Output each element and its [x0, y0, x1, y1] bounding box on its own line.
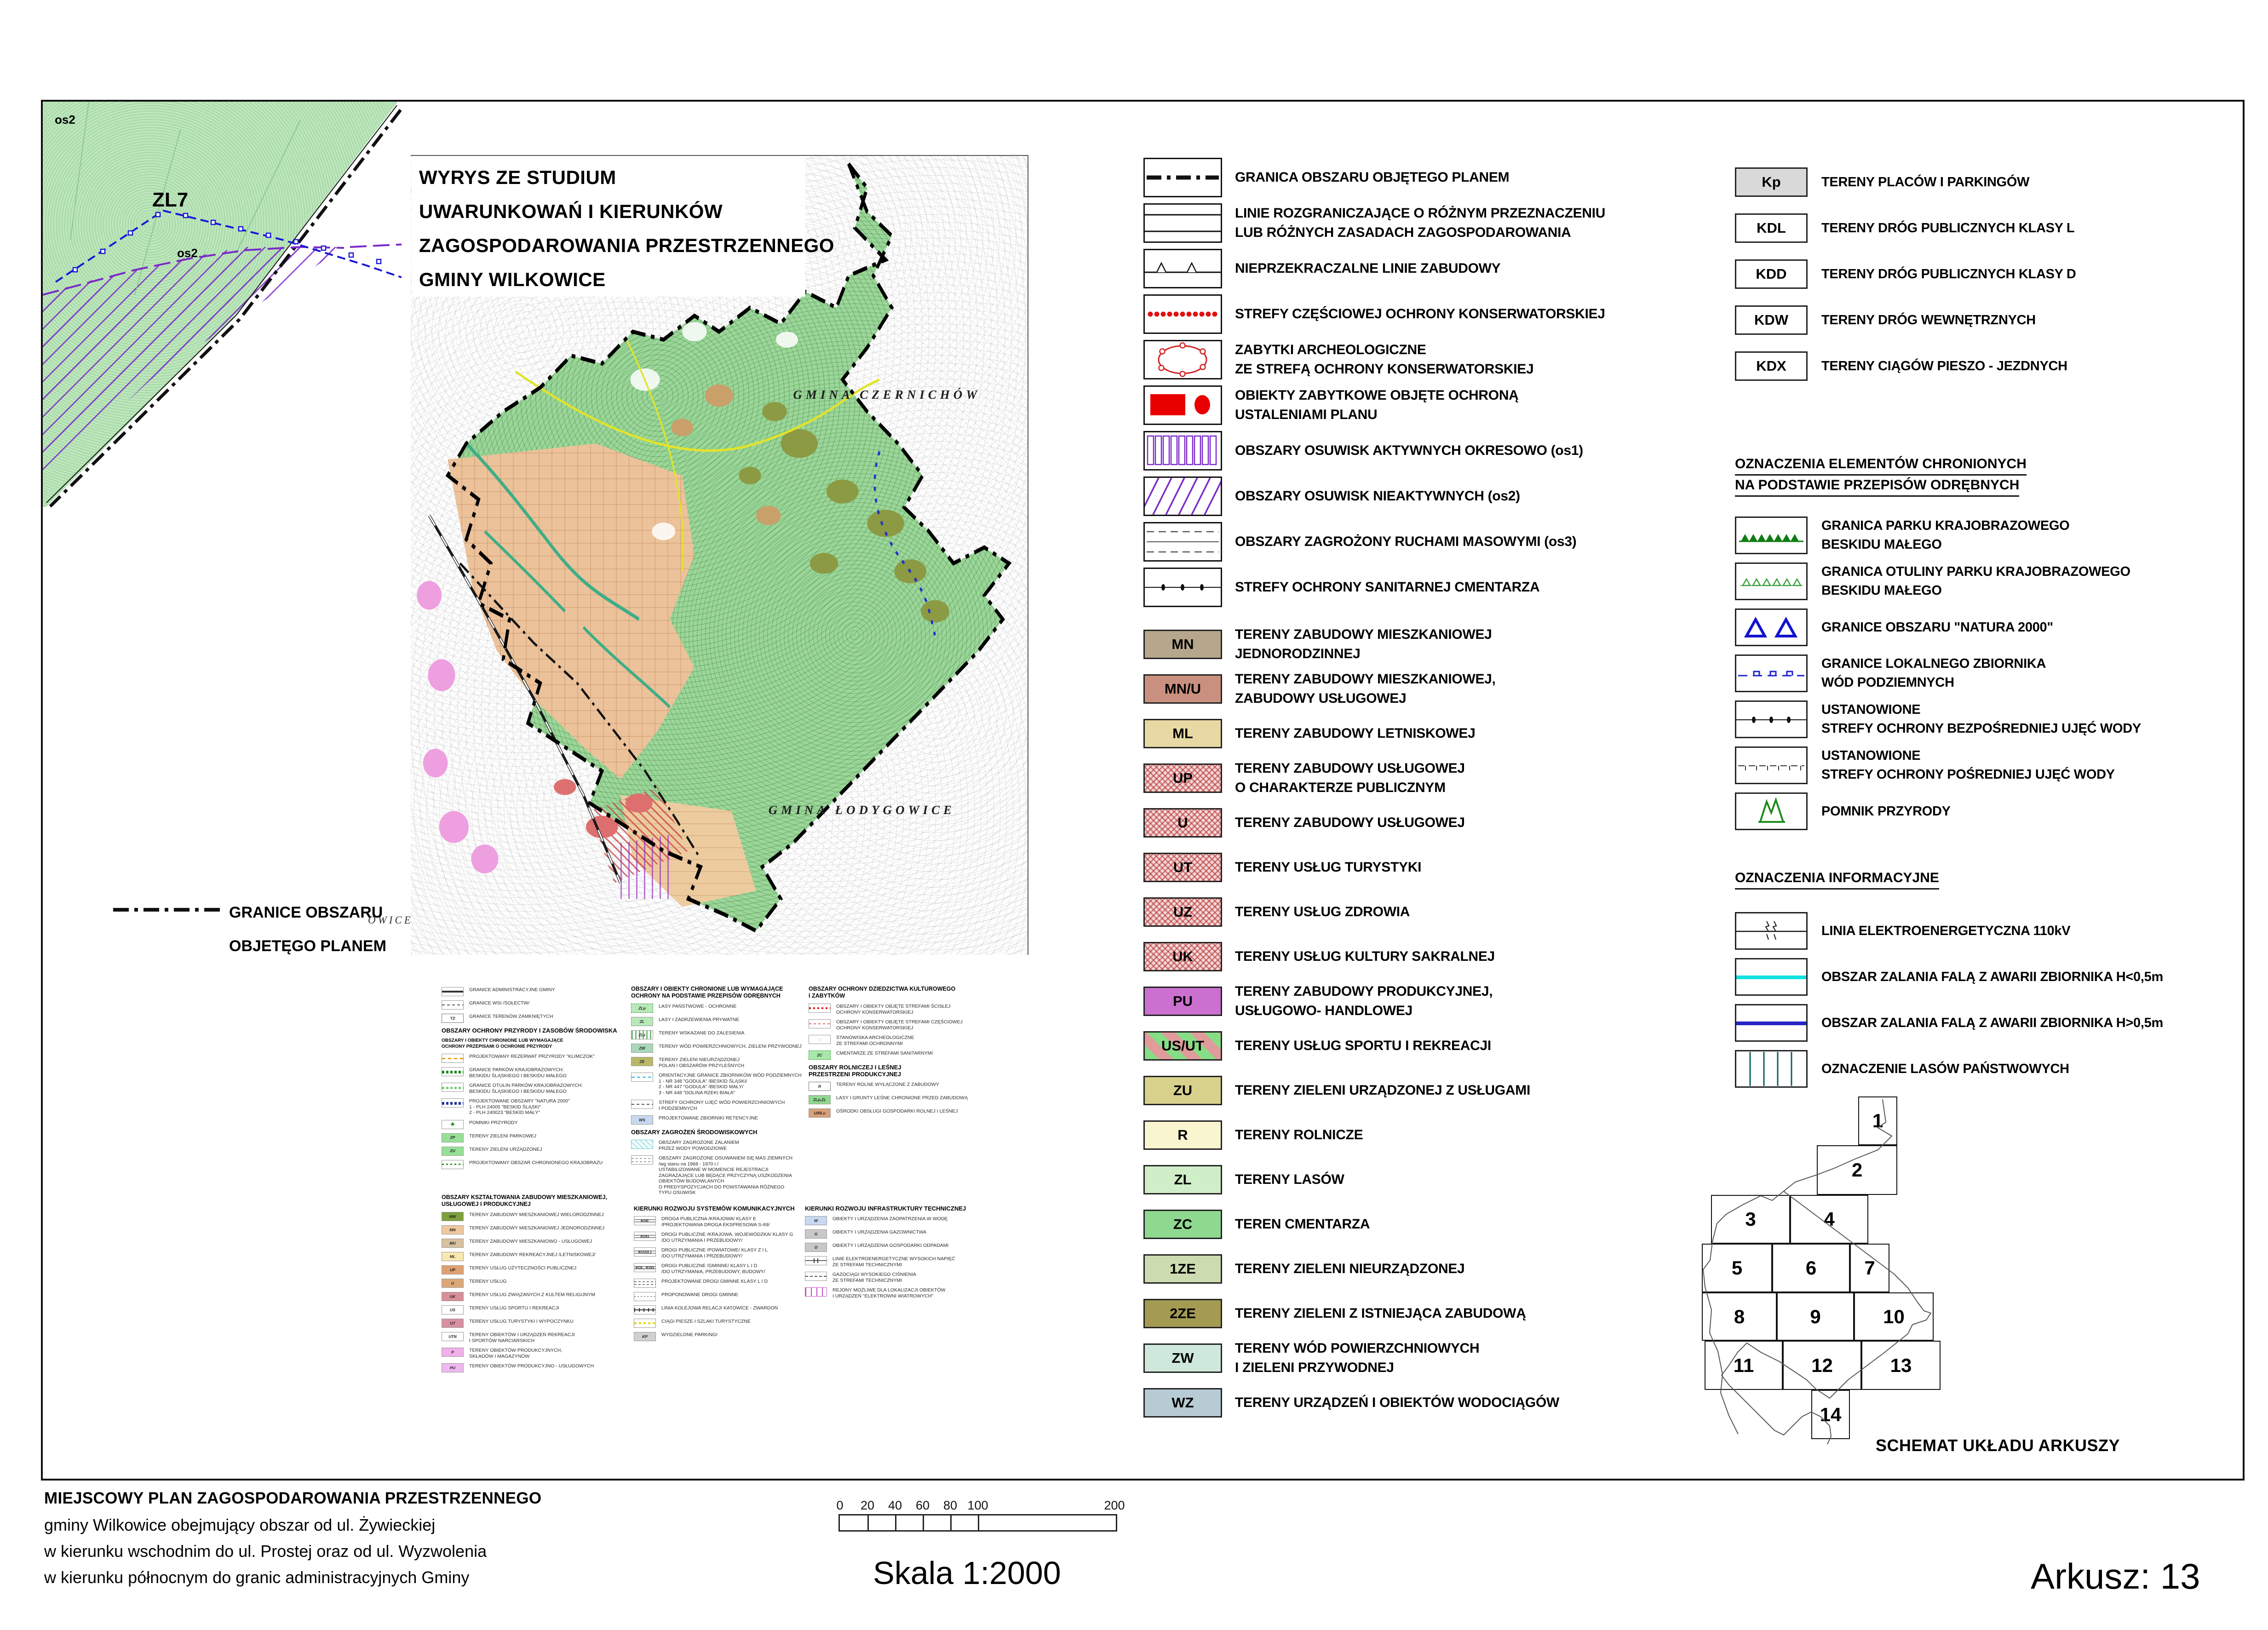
- zone-chip: ZW: [1143, 1343, 1222, 1373]
- mini-label: PROJEKTOWANY OBSZAR CHRONIONEGO KRAJOBRA…: [469, 1160, 603, 1166]
- mini-row: KDG DROGI PUBLICZNE /KRAJOWA, WOJEWÓDZKA…: [634, 1232, 811, 1243]
- mini-label: TERENY ZABUDOWY MIESZKANIOWEJ WIELORODZI…: [469, 1212, 603, 1218]
- protected-row: GRANICA OTULINY PARKU KRAJOBRAZOWEGO BES…: [1735, 558, 2268, 604]
- mini-row: KP WYDZIELONE PARKINGI: [634, 1332, 811, 1341]
- zone-chip: UP: [1143, 763, 1222, 793]
- flood-low-icon: [1735, 958, 1808, 996]
- zone-chip: ZL: [1143, 1165, 1222, 1194]
- corner-map-fragment: os2 ZL7 os2: [43, 102, 402, 511]
- corner-map-lines: os2 ZL7 os2: [43, 102, 402, 511]
- mini-symbol: ◌: [809, 1035, 831, 1044]
- road-label: TERENY DRÓG PUBLICZNYCH KLASY L: [1821, 219, 2074, 238]
- legend-row: GRANICA OBSZARU OBJĘTEGO PLANEM: [1143, 155, 1682, 200]
- legend-row: ZABYTKI ARCHEOLOGICZNE ZE STREFĄ OCHRONY…: [1143, 337, 1682, 382]
- mini-row: U/RLu OŚRODKI OBSŁUGI GOSPODARKI ROLNEJ …: [809, 1108, 988, 1118]
- mini-symbol: [805, 1256, 827, 1265]
- legend-row: OBIEKTY ZABYTKOWE OBJĘTE OCHRONĄ USTALEN…: [1143, 382, 1682, 428]
- sheet-layout-label: SCHEMAT UKŁADU ARKUSZY: [1876, 1436, 2120, 1455]
- protected-row: GRANICE LOKALNEGO ZBIORNIKA WÓD PODZIEMN…: [1735, 650, 2268, 696]
- scale-bar-labels: 020406080100200: [838, 1498, 1117, 1514]
- zone-label: TEREN CMENTARZA: [1235, 1215, 1370, 1234]
- mini-symbol: W: [805, 1216, 827, 1225]
- studium-legend-development: OBSZARY KSZTAŁTOWANIA ZABUDOWY MIESZKANI…: [442, 1194, 626, 1377]
- mini-symbol: KDG: [634, 1232, 656, 1241]
- mini-symbol: ZP: [442, 1133, 464, 1142]
- mini-label: TERENY OBIEKTÓW PRODUKCYJNO - USŁUGOWYCH: [469, 1363, 594, 1369]
- scale-bar-rect: [838, 1514, 1117, 1532]
- zone-label: TERENY ZABUDO­WY USŁUGOWEJ: [1235, 813, 1465, 832]
- mini-label: STREFY OCHRONY UJĘĆ WÓD POWIERZCHNIOWYCH…: [659, 1100, 785, 1111]
- mini-symbol: P: [442, 1348, 464, 1357]
- mini-row: G OBIEKTY I URZĄDZENIA GAZOWNICTWA: [805, 1229, 993, 1239]
- mini-row: U TERENY USŁUG: [442, 1279, 626, 1288]
- zone-chip: MN/U: [1143, 674, 1222, 704]
- mini-symbol: UT: [442, 1319, 464, 1328]
- scale-tick-label: 60: [916, 1498, 930, 1513]
- studium-legend-heritage: OBSZARY OCHRONY DZIEDZICTWA KULTUROWEGO …: [809, 986, 988, 1122]
- mini-symbol: [634, 1319, 656, 1328]
- mini-label: OBSZARY I OBIEKTY CHRONIONE LUB WYMAGAJĄ…: [631, 986, 783, 999]
- road-label: TERENY DRÓG PUBLICZNYCH KLASY D: [1821, 265, 2076, 284]
- zone-label: TERENY ZABUDOWY LETNISKOWEJ: [1235, 724, 1476, 743]
- road-label: TERENY DRÓG WEWNĘTRZNYCH: [1821, 311, 2036, 330]
- mini-label: OBSZARY I OBIEKTY OBJĘTE STREFAMI ŚCISŁE…: [836, 1004, 951, 1015]
- zone-row: 1ZE TERENY ZIELENI NIEURZĄDZONEJ: [1143, 1246, 1682, 1291]
- mini-symbol: MW: [442, 1212, 464, 1221]
- mini-label: CIĄGI PIESZE I SZLAKI TURYSTYCZNE: [661, 1319, 751, 1325]
- zone-label: TERENY ZABUDOWY MIESZKANIOWEJ JEDNORODZI…: [1235, 625, 1492, 664]
- mini-label: PROJEKTOWANE DROGI GMINNE KLASY L I D: [661, 1279, 768, 1285]
- zone-label: TERENY ZABUDOWY PRODUKCYJNEJ, USŁUGOWO- …: [1235, 982, 1493, 1021]
- info-header: OZNACZENIA INFORMACYJNE: [1735, 868, 2268, 890]
- protected-row: USTANOWIONE STREFY OCHRONY POŚREDNIEJ UJ…: [1735, 742, 2268, 788]
- mini-symbol: MU: [442, 1239, 464, 1248]
- mini-symbol: [805, 1272, 827, 1281]
- mini-symbol: UTN: [442, 1332, 464, 1341]
- zone-chip: US/UT: [1143, 1031, 1222, 1061]
- mini-row: OBSZARY ROLNICZEJ I LEŚNEJ PRZESTRZENI P…: [809, 1064, 988, 1078]
- mini-symbol: U: [442, 1279, 464, 1288]
- zone-label: TERENY USŁUG ZDROWIA: [1235, 902, 1410, 922]
- mini-label: TERENY USŁUG SPORTU I REKREACJI: [469, 1305, 559, 1311]
- zone-label: TERENY ZABUDOWY MIESZKANIOWEJ, ZABUDOWY …: [1235, 670, 1496, 708]
- mini-row: OBSZARY OCHRONY PRZYRODY I ZASOBÓW ŚRODO…: [442, 1027, 626, 1034]
- park-buffer-icon: [1735, 562, 1808, 600]
- mini-label: OBSZARY ZAGROŻEŃ ŚRODOWISKOWYCH: [631, 1129, 757, 1136]
- mini-symbol: O: [805, 1243, 827, 1252]
- os2-label-mid: os2: [177, 246, 198, 260]
- scale-tick-label: 200: [1104, 1498, 1125, 1513]
- scale-text: Skala 1:2000: [873, 1555, 1061, 1591]
- mini-label: DROGI PUBLICZNE /KRAJOWA, WOJEWÓDZKA/ KL…: [661, 1232, 793, 1243]
- mini-row: ZU TERENY ZIELENI URZĄDZONEJ: [442, 1147, 626, 1156]
- mini-row: ZLp LASY PAŃSTWOWE - OCHRONNE: [631, 1004, 808, 1013]
- mini-label: PROJEKTOWANE ZBIORNIKI RETENCYJNE: [659, 1115, 758, 1121]
- mini-symbol: [631, 1100, 653, 1109]
- mini-symbol: KDL, KDD: [634, 1263, 656, 1272]
- mini-row: STREFY OCHRONY UJĘĆ WÓD POWIERZCHNIOWYCH…: [631, 1100, 808, 1111]
- mini-row: REJONY MOŻLIWE DLA LOKALIZACJI OBIEKTÓW …: [805, 1287, 993, 1299]
- mini-symbol: UK: [442, 1292, 464, 1301]
- mini-label: LINIE ELEKTROENERGETYCZNE WYSOKICH NAPIĘ…: [833, 1256, 955, 1268]
- zone-label: TERENY ZIELENI Z ISTNIEJĄCA ZABUDOWĄ: [1235, 1304, 1526, 1323]
- mini-symbol: ZL: [631, 1017, 653, 1026]
- mini-row: ZL LASY I ZADRZEWIENIA PRYWATNE: [631, 1017, 808, 1026]
- mini-symbol: PU: [442, 1363, 464, 1372]
- zone-row: ZU TERENY ZIELENI URZĄDZONEJ Z USŁUGAMI: [1143, 1068, 1682, 1113]
- mini-label: GAZOCIĄGI WYSOKIEGO CIŚNIENIA ZE STREFAM…: [833, 1272, 916, 1283]
- protected-row: GRANICA PARKU KRAJOBRAZOWEGO BESKIDU MAŁ…: [1735, 512, 2268, 558]
- mini-label: OBSZARY I OBIEKTY CHRONIONE LUB WYMAGAJĄ…: [442, 1038, 563, 1050]
- info-row: LINIA ELEKTROENERGETYCZNA 110kV: [1735, 908, 2268, 954]
- dash-dot-line-icon: [1143, 158, 1222, 197]
- mini-label: GRANICE OTULIN PARKÓW KRAJOBRAZOWYCH: BE…: [469, 1083, 583, 1094]
- mini-label: LASY PAŃSTWOWE - OCHRONNE: [659, 1004, 736, 1010]
- mini-label: DROGI PUBLICZNE /POWIATOWE/ KLASY Z I L …: [661, 1247, 768, 1259]
- zone-chip: UZ: [1143, 897, 1222, 927]
- direct-protection-icon: [1735, 700, 1808, 738]
- legend-right: Kp TERENY PLACÓW I PARKINGÓW KDL TERENY …: [1735, 159, 2268, 1092]
- legend-main: GRANICA OBSZARU OBJĘTEGO PLANEM LINIE RO…: [1143, 155, 1682, 1425]
- legend-row: STREFY OCHRONY SANITARNEJ CMENTARZA: [1143, 564, 1682, 610]
- mini-label: CMENTARZE ZE STREFAMI SANITARNYMI: [836, 1050, 933, 1056]
- powerline-110kv-icon: [1735, 912, 1808, 950]
- mini-label: TERENY ZABUDOWY MIESZKANIOWO - USŁUGOWEJ: [469, 1239, 592, 1245]
- zl7-label: ZL7: [152, 189, 188, 211]
- mini-label: ORIENTACYJNE GRANICE ZBIORNIKÓW WÓD PODZ…: [659, 1073, 802, 1096]
- mini-label: OBSZARY I OBIEKTY OBJĘTE STREFAMI CZĘŚCI…: [836, 1019, 963, 1031]
- info-row: OBSZAR ZALANIA FALĄ Z AWARII ZBIORNIKA H…: [1735, 1000, 2268, 1046]
- aquifer-square-marks: [73, 212, 381, 272]
- mini-symbol: KDZ(L): [634, 1247, 656, 1257]
- sheet-cell: 7: [1850, 1244, 1889, 1292]
- scale-tick-label: 20: [861, 1498, 874, 1513]
- mini-symbol: [442, 1000, 464, 1010]
- zone-row: 2ZE TERENY ZIELENI Z ISTNIEJĄCA ZABUDOWĄ: [1143, 1291, 1682, 1336]
- mini-row: LINIE ELEKTROENERGETYCZNE WYSOKICH NAPIĘ…: [805, 1256, 993, 1268]
- mini-row: OBSZARY KSZTAŁTOWANIA ZABUDOWY MIESZKANI…: [442, 1194, 626, 1208]
- mini-row: US TERENY USŁUG SPORTU I REKREACJI: [442, 1305, 626, 1314]
- mini-label: PROJEKTOWANE OBSZARY "NATURA 2000" 1 - P…: [469, 1098, 570, 1116]
- mini-row: PU TERENY OBIEKTÓW PRODUKCYJNO - USŁUGOW…: [442, 1363, 626, 1372]
- protected-header: OZNACZENIA ELEMENTÓW CHRONIONYCH NA PODS…: [1735, 454, 2268, 497]
- gmina-lodygowice-label: GMINA ŁODYGOWICE: [769, 803, 955, 817]
- road-chip: KDX: [1735, 351, 1808, 381]
- mini-symbol: U/RLu: [809, 1108, 831, 1118]
- mini-symbol: KP: [634, 1332, 656, 1341]
- mini-symbol: G: [805, 1229, 827, 1239]
- zone-chip: 1ZE: [1143, 1254, 1222, 1284]
- mini-row: ZLp,ZL LASY I GRUNTY LEŚNE CHRONIONE PRZ…: [809, 1095, 988, 1104]
- sheet-cell: 3: [1711, 1195, 1790, 1244]
- cemetery-sanitary-icon: [1143, 568, 1222, 607]
- protected-row: USTANOWIONE STREFY OCHRONY BEZPOŚREDNIEJ…: [1735, 696, 2268, 742]
- mini-symbol: ZLp,ZL: [809, 1095, 831, 1104]
- mini-label: STANOWISKA ARCHEOLOGICZNE ZE STREFAMI OC…: [836, 1035, 914, 1046]
- mini-row: GRANICE OTULIN PARKÓW KRAJOBRAZOWYCH: BE…: [442, 1083, 626, 1094]
- sheet-cell: 2: [1817, 1145, 1897, 1195]
- sheet-cell: 8: [1702, 1292, 1777, 1341]
- mini-symbol: [634, 1292, 656, 1301]
- mini-row: OBSZARY ZAGROŻEŃ ŚRODOWISKOWYCH: [631, 1129, 808, 1136]
- zone-row: UT TERENY USŁUG TURYSTYKI: [1143, 845, 1682, 890]
- mini-symbol: [809, 1019, 831, 1028]
- zone-row: US/UT TERENY USŁUG SPORTU I REKREACJI: [1143, 1023, 1682, 1068]
- mini-row: OBSZARY I OBIEKTY OBJĘTE STREFAMI CZĘŚCI…: [809, 1019, 988, 1031]
- mini-label: TERENY USŁUG TURYSTYKI I WYPOCZYNKU: [469, 1319, 574, 1325]
- monument-objects-icon: [1143, 385, 1222, 425]
- mini-label: TERENY USŁUG: [469, 1279, 507, 1285]
- mini-label: GRANICE TERENÓW ZAMKNIĘTYCH: [469, 1014, 553, 1020]
- mini-label: GRANICE WSI /SOŁECTW/: [469, 1000, 529, 1006]
- mini-row: TZ GRANICE TERENÓW ZAMKNIĘTYCH: [442, 1014, 626, 1023]
- road-chip: KDL: [1735, 213, 1808, 243]
- zone-label: TERENY ROLNICZE: [1235, 1125, 1363, 1145]
- mini-row: OBSZARY I OBIEKTY CHRONIONE LUB WYMAGAJĄ…: [442, 1038, 626, 1050]
- mini-label: TERENY WÓD POWIERZCHNIOWYCH, ZIELENI PRZ…: [659, 1044, 802, 1050]
- mini-row: ZLz TERENY WSKAZANE DO ZALESIENIA: [631, 1030, 808, 1039]
- zone-label: TERENY LASÓW: [1235, 1170, 1344, 1189]
- info-row: OBSZAR ZALANIA FALĄ Z AWARII ZBIORNIKA H…: [1735, 954, 2268, 1000]
- zone-label: TERENY USŁUG KULTURY SAKRALNEJ: [1235, 947, 1495, 966]
- mini-symbol: ZC: [809, 1050, 831, 1060]
- plan-sheet: os2 ZL7 os2: [0, 0, 2268, 1630]
- scale-tick-label: 100: [967, 1498, 988, 1513]
- legend-row: OBSZARY ZAGROŻONY RUCHAMI MASOWYMI (os3): [1143, 519, 1682, 564]
- sheet-cell: 6: [1772, 1244, 1850, 1292]
- mini-row: P TERENY OBIEKTÓW PRODUKCYJNYCH, SKŁADÓW…: [442, 1348, 626, 1359]
- zone-chip: 2ZE: [1143, 1299, 1222, 1328]
- mini-row: OBSZARY OCHRONY DZIEDZICTWA KULTUROWEGO …: [809, 986, 988, 999]
- zone-row: MN TERENY ZABUDOWY MIESZKANIOWEJ JEDNORO…: [1143, 622, 1682, 666]
- zone-label: TERENY WÓD POWIERZCHNIOWYCH I ZIELENI PR…: [1235, 1339, 1479, 1377]
- mini-row: PROJEKTOWANE OBSZARY "NATURA 2000" 1 - P…: [442, 1098, 626, 1116]
- zone-chip: UT: [1143, 853, 1222, 882]
- road-chip: KDD: [1735, 259, 1808, 289]
- mini-symbol: [634, 1305, 656, 1314]
- groundwater-basin-icon: [1735, 654, 1808, 692]
- os2-label-top: os2: [55, 113, 75, 126]
- mini-label: REJONY MOŻLIWE DLA LOKALIZACJI OBIEKTÓW …: [833, 1287, 945, 1299]
- zone-chip: U: [1143, 808, 1222, 838]
- parallel-lines-icon: [1143, 203, 1222, 243]
- scale-tick-label: 80: [943, 1498, 957, 1513]
- mini-label: OBIEKTY I URZĄDZENIA GAZOWNICTWA: [833, 1229, 926, 1235]
- mini-row: ◌ STANOWISKA ARCHEOLOGICZNE ZE STREFAMI …: [809, 1035, 988, 1046]
- mini-row: O OBIEKTY I URZĄDZENIA GOSPODARKI ODPADA…: [805, 1243, 993, 1252]
- mini-symbol: R: [809, 1082, 831, 1091]
- legend-row: NIEPRZEKRACZALNE LINIE ZABUDOWY: [1143, 246, 1682, 291]
- mini-label: TERENY ZABUDOWY REKREACYJNEJ /LETNISKOWE…: [469, 1252, 595, 1258]
- scale-tick-label: 40: [888, 1498, 902, 1513]
- mini-label: OBSZARY OCHRONY PRZYRODY I ZASOBÓW ŚRODO…: [442, 1027, 617, 1034]
- studium-legend-nature: GRANICE ADMINISTRACYJNE GMINY GRANICE WS…: [442, 987, 626, 1173]
- zone-label: TERENY ZABUDOWY USŁUGOWEJ O CHARAKTERZE …: [1235, 759, 1465, 798]
- natura2000-icon: [1735, 608, 1808, 646]
- mini-symbol: ZE: [631, 1057, 653, 1066]
- mini-label: TERENY WSKAZANE DO ZALESIENIA: [659, 1030, 745, 1036]
- tan-patches: [671, 385, 781, 525]
- trail: [516, 372, 879, 451]
- legend-row: LINIE ROZGRANICZAJĄCE O RÓŻNYM PRZEZNACZ…: [1143, 200, 1682, 246]
- studium-legend-protected: OBSZARY I OBIEKTY CHRONIONE LUB WYMAGAJĄ…: [631, 986, 808, 1200]
- mini-symbol: [442, 987, 464, 996]
- inactive-landslide-icon: [1143, 476, 1222, 516]
- sheet-layout-diagram: 1 2 3 4 5 6 7 8 9 10 11 12 13 14: [1700, 1094, 1950, 1452]
- mini-label: KIERUNKI ROZWOJU SYSTEMÓW KOMUNIKACYJNYC…: [634, 1205, 795, 1212]
- mini-label: TERENY USŁUG UŻYTECZNOŚCI PUBLICZNEJ: [469, 1265, 576, 1271]
- mini-label: TERENY ZIELENI URZĄDZONEJ: [469, 1147, 542, 1153]
- zone-row: ZL TERENY LASÓW: [1143, 1157, 1682, 1202]
- legend-row: OBSZARY OSUWISK AKTYWNYCH OKRESOWO (os1): [1143, 428, 1682, 473]
- mini-label: OBSZARY ROLNICZEJ I LEŚNEJ PRZESTRZENI P…: [809, 1064, 901, 1078]
- mini-row: OBSZARY ZAGROŻONE ZALANIEM PRZEZ WODY PO…: [631, 1140, 808, 1151]
- legend-row: STREFY CZĘŚCIOWEJ OCHRONY KONSERWATORSKI…: [1143, 291, 1682, 337]
- mini-row: KIERUNKI ROZWOJU SYSTEMÓW KOMUNIKACYJNYC…: [634, 1205, 811, 1212]
- mini-label: TERENY ZIELENI NIEURZĄDZONEJ POLAN I OBS…: [659, 1057, 744, 1068]
- road-label: TERENY CIĄGÓW PIESZO - JEZDNYCH: [1821, 357, 2067, 376]
- mini-symbol: [442, 1083, 464, 1092]
- zone-row: WZ TERENY URZĄDZEŃ I OBIEKTÓW WODOCIĄGÓW: [1143, 1380, 1682, 1425]
- park-boundary-icon: [1735, 517, 1808, 554]
- mini-label: DROGI PUBLICZNE /GMINNE/ KLASY L I D /DO…: [661, 1263, 765, 1274]
- mini-label: OBIEKTY I URZĄDZENIA ZAOPATRZENIA W WODĘ: [833, 1216, 947, 1222]
- sheet-cell: 5: [1702, 1244, 1772, 1292]
- mini-row: OBSZARY I OBIEKTY CHRONIONE LUB WYMAGAJĄ…: [631, 986, 808, 999]
- title-block: MIEJSCOWY PLAN ZAGOSPODAROWANIA PRZESTRZ…: [44, 1489, 541, 1594]
- wyrys-title-box: WYRYS ZE STUDIUM UWARUNKOWAŃ I KIERUNKÓW…: [412, 156, 805, 297]
- mini-label: LASY I GRUNTY LEŚNE CHRONIONE PRZED ZABU…: [836, 1095, 968, 1101]
- mini-row: MW TERENY ZABUDOWY MIESZKANIOWEJ WIELORO…: [442, 1212, 626, 1221]
- mini-label: OŚRODKI OBSŁUGI GOSPODARKI ROLNEJ I LEŚN…: [836, 1108, 958, 1114]
- mini-label: GRANICE PARKÓW KRAJOBRAZOWYCH: BESKIDU Ś…: [469, 1067, 567, 1079]
- mini-row: ORIENTACYJNE GRANICE ZBIORNIKÓW WÓD PODZ…: [631, 1073, 808, 1096]
- wyrys-line: WYRYS ZE STUDIUM: [419, 161, 805, 195]
- mini-symbol: MN: [442, 1225, 464, 1234]
- mini-symbol: WS: [631, 1115, 653, 1125]
- zone-row: ZC TEREN CMENTARZA: [1143, 1202, 1682, 1246]
- inner-boundary: [460, 563, 700, 859]
- studium-legend-infrastructure: KIERUNKI ROZWOJU INFRASTRUKTURY TECHNICZ…: [805, 1205, 993, 1303]
- mini-row: KDE DROGA PUBLICZNA /KRAJOWA/ KLASY E /P…: [634, 1216, 811, 1228]
- mini-symbol: ♣: [442, 1120, 464, 1129]
- road-row: KDW TERENY DRÓG WEWNĘTRZNYCH: [1735, 297, 2268, 343]
- archeology-zone-icon: [1143, 340, 1222, 379]
- mini-label: PROPONOWANE DROGI GMINNE: [661, 1292, 738, 1298]
- zone-label: TERENY ZIELENI URZĄDZONEJ Z USŁUGAMI: [1235, 1081, 1530, 1100]
- zone-row: R TERENY ROLNICZE: [1143, 1113, 1682, 1157]
- zone-row: PU TERENY ZABUDOWY PRODUKCYJNEJ, USŁUGOW…: [1143, 979, 1682, 1023]
- mini-label: TERENY USŁUG ZWIĄZANYCH Z KULTEM RELIGIJ…: [469, 1292, 595, 1298]
- mini-label: KIERUNKI ROZWOJU INFRASTRUKTURY TECHNICZ…: [805, 1205, 966, 1212]
- mini-row: OBSZARY ZAGROŻONE OSUWANIEM SIĘ MAS ZIEM…: [631, 1155, 808, 1196]
- mini-label: OBSZARY ZAGROŻONE ZALANIEM PRZEZ WODY PO…: [659, 1140, 739, 1151]
- mini-row: KIERUNKI ROZWOJU INFRASTRUKTURY TECHNICZ…: [805, 1205, 993, 1212]
- mini-symbol: TZ: [442, 1014, 464, 1023]
- sheet-cell-current: 14: [1811, 1390, 1850, 1439]
- mini-label: TERENY ZABUDOWY MIESZKANIOWEJ JEDNORODZI…: [469, 1225, 604, 1231]
- road-chip: KDW: [1735, 305, 1808, 335]
- protected-row: GRANICE OBSZARU "NATURA 2000": [1735, 604, 2268, 650]
- mini-row: UP TERENY USŁUG UŻYTECZNOŚCI PUBLICZNEJ: [442, 1265, 626, 1274]
- zone-label: TERENY URZĄDZEŃ I OBIEKTÓW WODOCIĄGÓW: [1235, 1393, 1559, 1412]
- mini-symbol: US: [442, 1305, 464, 1314]
- mini-row: PROJEKTOWANY REZERWAT PRZYRODY "KLIMCZOK…: [442, 1054, 626, 1063]
- mini-row: ZP TERENY ZIELENI PARKOWEJ: [442, 1133, 626, 1142]
- indirect-protection-icon: [1735, 746, 1808, 784]
- pink-patches: [417, 581, 498, 873]
- mini-symbol: KDE: [634, 1216, 656, 1225]
- mini-symbol: [634, 1279, 656, 1288]
- road-label: TERENY PLACÓW I PARKINGÓW: [1821, 173, 2029, 192]
- road-row: KDD TERENY DRÓG PUBLICZNYCH KLASY D: [1735, 251, 2268, 297]
- sheet-cell: 12: [1783, 1341, 1861, 1390]
- mini-symbol: ZLp: [631, 1004, 653, 1013]
- zone-chip: MN: [1143, 630, 1222, 659]
- sheet-cell: 13: [1861, 1341, 1941, 1390]
- plan-subtitle: gminy Wilkowice obejmujący obszar od ul.…: [44, 1515, 541, 1535]
- wyrys-line: GMINY WILKOWICE: [419, 263, 805, 297]
- mini-symbol: [442, 1054, 464, 1063]
- mini-row: KDZ(L) DROGI PUBLICZNE /POWIATOWE/ KLASY…: [634, 1247, 811, 1259]
- mini-label: OBSZARY KSZTAŁTOWANIA ZABUDOWY MIESZKANI…: [442, 1194, 607, 1208]
- mini-label: TERENY ROLNE WYŁĄCZONE Z ZABUDOWY: [836, 1082, 939, 1088]
- zone-row: U TERENY ZABUDO­WY USŁUGOWEJ: [1143, 800, 1682, 845]
- plan-boundary-note-text: GRANICE OBSZARU OBJETĘGO PLANEM: [229, 896, 490, 963]
- mini-row: PROPONOWANE DROGI GMINNE: [634, 1292, 811, 1301]
- dash-dot-line-sample: [113, 908, 223, 912]
- gmina-czernichow-label: GMINA CZERNICHÓW: [793, 388, 981, 402]
- zone-label: TERENY USŁUG TURYSTYKI: [1235, 858, 1421, 877]
- mini-symbol: [805, 1287, 827, 1297]
- mini-label: POMNIKI PRZYRODY: [469, 1120, 518, 1126]
- state-forest-icon: [1735, 1050, 1808, 1088]
- road-row: KDX TERENY CIĄGÓW PIESZO - JEZDNYCH: [1735, 343, 2268, 389]
- mini-label: LASY I ZADRZEWIENIA PRYWATNE: [659, 1017, 739, 1023]
- mini-symbol: [442, 1067, 464, 1076]
- mini-symbol: ZLz: [631, 1030, 653, 1039]
- mini-row: OBSZARY I OBIEKTY OBJĘTE STREFAMI ŚCISŁE…: [809, 1004, 988, 1015]
- mini-row: MN TERENY ZABUDOWY MIESZKANIOWEJ JEDNORO…: [442, 1225, 626, 1234]
- mini-row: ZC CMENTARZE ZE STREFAMI SANITARNYMI: [809, 1050, 988, 1060]
- mini-row: PROJEKTOWANY OBSZAR CHRONIONEGO KRAJOBRA…: [442, 1160, 626, 1169]
- zone-label: TERENY USŁUG SPORTU I REKREACJI: [1235, 1036, 1491, 1056]
- mini-label: TERENY OBIEKTÓW PRODUKCYJNYCH, SKŁADÓW I…: [469, 1348, 562, 1359]
- sheet-number: Arkusz: 13: [2031, 1555, 2200, 1597]
- road-row: KDL TERENY DRÓG PUBLICZNYCH KLASY L: [1735, 205, 2268, 251]
- mini-row: GAZOCIĄGI WYSOKIEGO CIŚNIENIA ZE STREFAM…: [805, 1272, 993, 1283]
- mini-label: TERENY OBIEKTÓW I URZĄDZEŃ REKREACJI I S…: [469, 1332, 575, 1343]
- mini-symbol: ML: [442, 1252, 464, 1261]
- red-patches: [554, 779, 653, 838]
- zone-chip: ML: [1143, 719, 1222, 748]
- mini-row: MU TERENY ZABUDOWY MIESZKANIOWO - USŁUGO…: [442, 1239, 626, 1248]
- mini-row: CIĄGI PIESZE I SZLAKI TURYSTYCZNE: [634, 1319, 811, 1328]
- sheet-cell: 1: [1858, 1096, 1897, 1145]
- sheet-cell: 10: [1854, 1292, 1934, 1341]
- mini-row: GRANICE WSI /SOŁECTW/: [442, 1000, 626, 1010]
- mini-row: GRANICE PARKÓW KRAJOBRAZOWYCH: BESKIDU Ś…: [442, 1067, 626, 1079]
- mini-row: UT TERENY USŁUG TURYSTYKI I WYPOCZYNKU: [442, 1319, 626, 1328]
- mini-label: OBIEKTY I URZĄDZENIA GOSPODARKI ODPADAMI: [833, 1243, 948, 1249]
- road-row: Kp TERENY PLACÓW I PARKINGÓW: [1735, 159, 2268, 205]
- zone-chip: ZC: [1143, 1210, 1222, 1239]
- zone-row: ML TERENY ZABUDOWY LETNISKOWEJ: [1143, 711, 1682, 756]
- wyrys-line: UWARUNKOWAŃ I KIERUNKÓW: [419, 195, 805, 229]
- road-list: Kp TERENY PLACÓW I PARKINGÓW KDL TERENY …: [1735, 159, 2268, 389]
- mini-symbol: [809, 1004, 831, 1013]
- zone-chip: WZ: [1143, 1388, 1222, 1418]
